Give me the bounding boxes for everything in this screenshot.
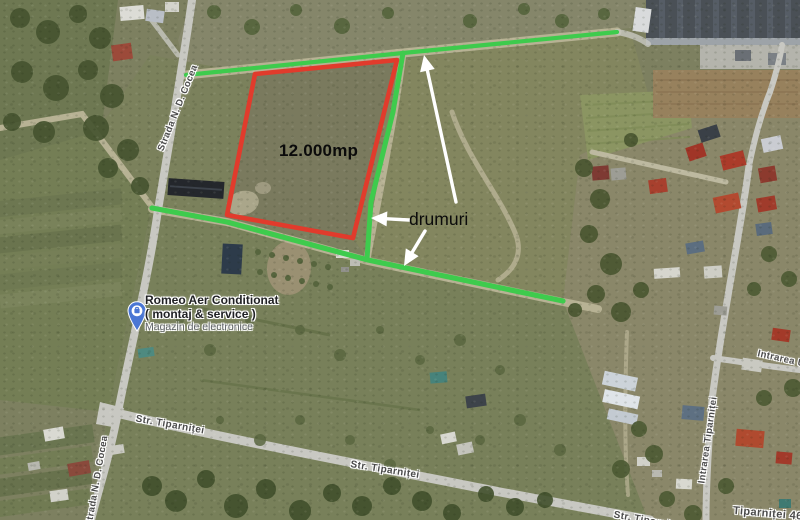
business-name[interactable]: Romeo Aer Conditionat (145, 294, 279, 308)
parcel-area-label: 12.000mp (279, 141, 358, 161)
annotation-arrow-tail (427, 71, 456, 202)
map-viewport[interactable]: Strada N. D. CoceaStrada N. D. CoceaStr.… (0, 0, 800, 520)
annotation-overlay (0, 0, 800, 520)
roads-annotation-label: drumuri (409, 209, 468, 230)
annotation-arrow-tail (412, 231, 425, 252)
business-category: Magazin de electronice (145, 322, 279, 334)
annotation-arrow-tail (387, 219, 409, 220)
business-subtitle: ( montaj & service ) (145, 308, 279, 322)
annotation-arrow-head (420, 55, 435, 72)
annotation-arrow-head (371, 211, 387, 226)
business-pin-icon[interactable] (127, 301, 147, 332)
business-label[interactable]: Romeo Aer Conditionat ( montaj & service… (145, 294, 279, 334)
